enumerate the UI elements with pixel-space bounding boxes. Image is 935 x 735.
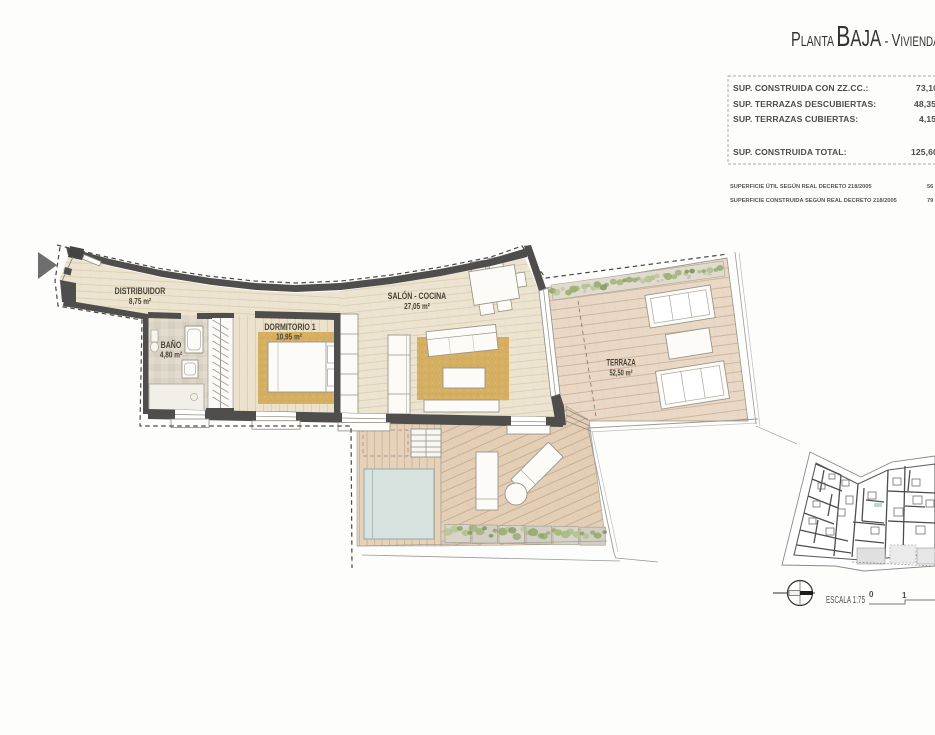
- svg-text:125,60 m²: 125,60 m²: [911, 147, 935, 157]
- svg-text:1: 1: [902, 591, 907, 600]
- svg-text:48,35 m²: 48,35 m²: [914, 99, 935, 109]
- svg-text:SUP. CONSTRUIDA CON ZZ.CC.:: SUP. CONSTRUIDA CON ZZ.CC.:: [733, 83, 868, 93]
- svg-text:4,15 m²: 4,15 m²: [919, 114, 935, 124]
- svg-text:SALÓN - COCINA: SALÓN - COCINA: [388, 291, 447, 301]
- svg-text:10,95 m²: 10,95 m²: [276, 332, 302, 342]
- svg-text:SUP. TERRAZAS CUBIERTAS:: SUP. TERRAZAS CUBIERTAS:: [733, 114, 858, 124]
- svg-text:SUP. CONSTRUIDA TOTAL:: SUP. CONSTRUIDA TOTAL:: [733, 147, 847, 157]
- svg-text:SUPERFICIE ÚTIL SEGÚN REAL DEC: SUPERFICIE ÚTIL SEGÚN REAL DECRETO 218/2…: [730, 183, 872, 190]
- svg-text:ESCALA 1:75: ESCALA 1:75: [826, 593, 865, 605]
- svg-text:79: 79: [927, 198, 933, 204]
- svg-text:DISTRIBUIDOR: DISTRIBUIDOR: [115, 286, 166, 296]
- svg-text:27,05 m²: 27,05 m²: [404, 301, 430, 311]
- svg-text:TERRAZA: TERRAZA: [606, 357, 636, 368]
- svg-text:52,50 m²: 52,50 m²: [609, 367, 633, 378]
- svg-text:73,10 m²: 73,10 m²: [916, 83, 935, 93]
- svg-text:8,75 m²: 8,75 m²: [129, 296, 152, 306]
- svg-text:SUPERFICIE CONSTRUIDA SEGÚN RE: SUPERFICIE CONSTRUIDA SEGÚN REAL DECRETO…: [730, 197, 897, 204]
- svg-text:SUP. TERRAZAS DESCUBIERTAS:: SUP. TERRAZAS DESCUBIERTAS:: [733, 99, 876, 109]
- svg-text:4,80 m²: 4,80 m²: [160, 350, 183, 360]
- svg-text:56: 56: [927, 184, 933, 190]
- svg-text:0: 0: [869, 590, 874, 599]
